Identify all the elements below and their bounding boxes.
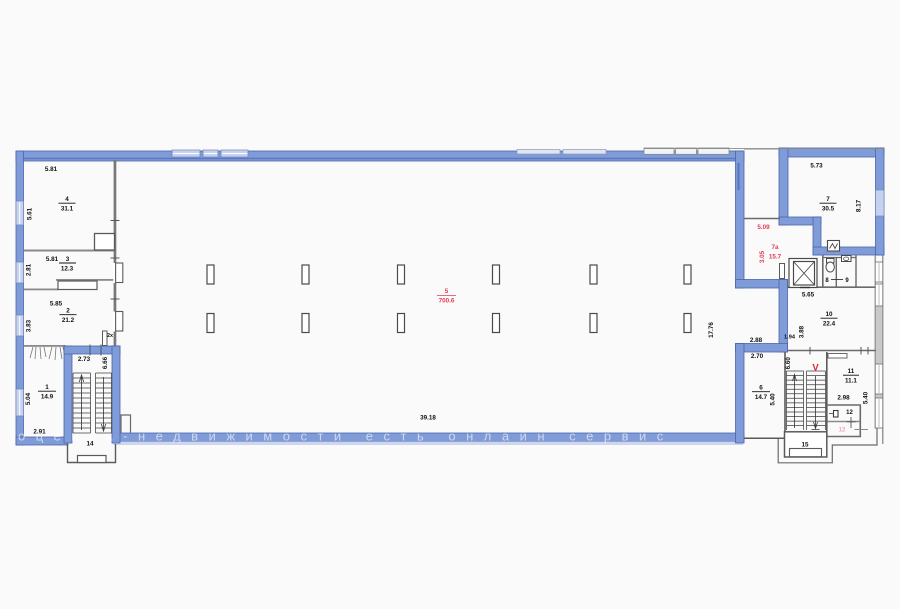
svg-text:3: 3 bbox=[66, 256, 70, 263]
svg-text:5.04: 5.04 bbox=[25, 392, 32, 405]
svg-text:V: V bbox=[812, 363, 819, 374]
svg-text:7a: 7a bbox=[771, 244, 779, 251]
svg-text:11.1: 11.1 bbox=[845, 377, 857, 384]
svg-text:5.85: 5.85 bbox=[50, 301, 63, 308]
svg-text:5: 5 bbox=[445, 288, 449, 295]
svg-text:2.73: 2.73 bbox=[78, 356, 91, 363]
svg-text:5.81: 5.81 bbox=[45, 166, 58, 173]
svg-text:2x: 2x bbox=[107, 333, 113, 339]
svg-text:12: 12 bbox=[839, 428, 846, 434]
svg-text:8.17: 8.17 bbox=[856, 199, 863, 212]
svg-text:14.7: 14.7 bbox=[755, 394, 768, 401]
svg-text:2.70: 2.70 bbox=[751, 353, 764, 360]
svg-text:3.05: 3.05 bbox=[759, 250, 766, 263]
svg-text:5.61: 5.61 bbox=[27, 207, 34, 220]
svg-text:15: 15 bbox=[801, 442, 809, 449]
svg-text:5.40: 5.40 bbox=[770, 393, 777, 406]
svg-text:1.94: 1.94 bbox=[784, 335, 796, 341]
svg-text:700.6: 700.6 bbox=[439, 298, 455, 305]
svg-text:3.83: 3.83 bbox=[26, 319, 33, 332]
svg-text:11: 11 bbox=[848, 368, 855, 375]
svg-text:12: 12 bbox=[846, 410, 853, 416]
svg-text:22.4: 22.4 bbox=[823, 320, 836, 327]
svg-text:5.09: 5.09 bbox=[757, 224, 770, 231]
svg-text:17.76: 17.76 bbox=[708, 322, 715, 338]
svg-text:30.5: 30.5 bbox=[822, 205, 835, 212]
svg-text:5.40: 5.40 bbox=[863, 391, 870, 404]
svg-text:6.66: 6.66 bbox=[102, 356, 109, 369]
svg-text:12.3: 12.3 bbox=[61, 266, 74, 273]
svg-text:14.9: 14.9 bbox=[41, 393, 54, 400]
svg-text:5.73: 5.73 bbox=[810, 163, 823, 170]
svg-text:6: 6 bbox=[759, 385, 763, 392]
svg-text:3.88: 3.88 bbox=[799, 325, 806, 338]
svg-text:21.2: 21.2 bbox=[62, 317, 75, 324]
svg-text:2.81: 2.81 bbox=[26, 263, 33, 276]
svg-text:5.65: 5.65 bbox=[802, 292, 815, 299]
svg-text:2: 2 bbox=[66, 308, 70, 315]
svg-text:6.60: 6.60 bbox=[785, 357, 792, 370]
svg-text:7: 7 bbox=[826, 196, 830, 203]
svg-text:4: 4 bbox=[65, 196, 69, 203]
svg-text:10: 10 bbox=[825, 311, 833, 318]
svg-text:2.98: 2.98 bbox=[837, 395, 850, 402]
svg-text:5.81: 5.81 bbox=[46, 256, 59, 263]
svg-text:2.88: 2.88 bbox=[750, 337, 763, 344]
svg-text:31.1: 31.1 bbox=[61, 205, 74, 212]
svg-text:1: 1 bbox=[45, 384, 49, 391]
svg-text:15.7: 15.7 bbox=[769, 254, 782, 261]
svg-text:39.18: 39.18 bbox=[420, 415, 436, 422]
svg-text:оценка-недвижимости есть онлай: оценка-недвижимости есть онлайн сервис bbox=[18, 429, 674, 444]
